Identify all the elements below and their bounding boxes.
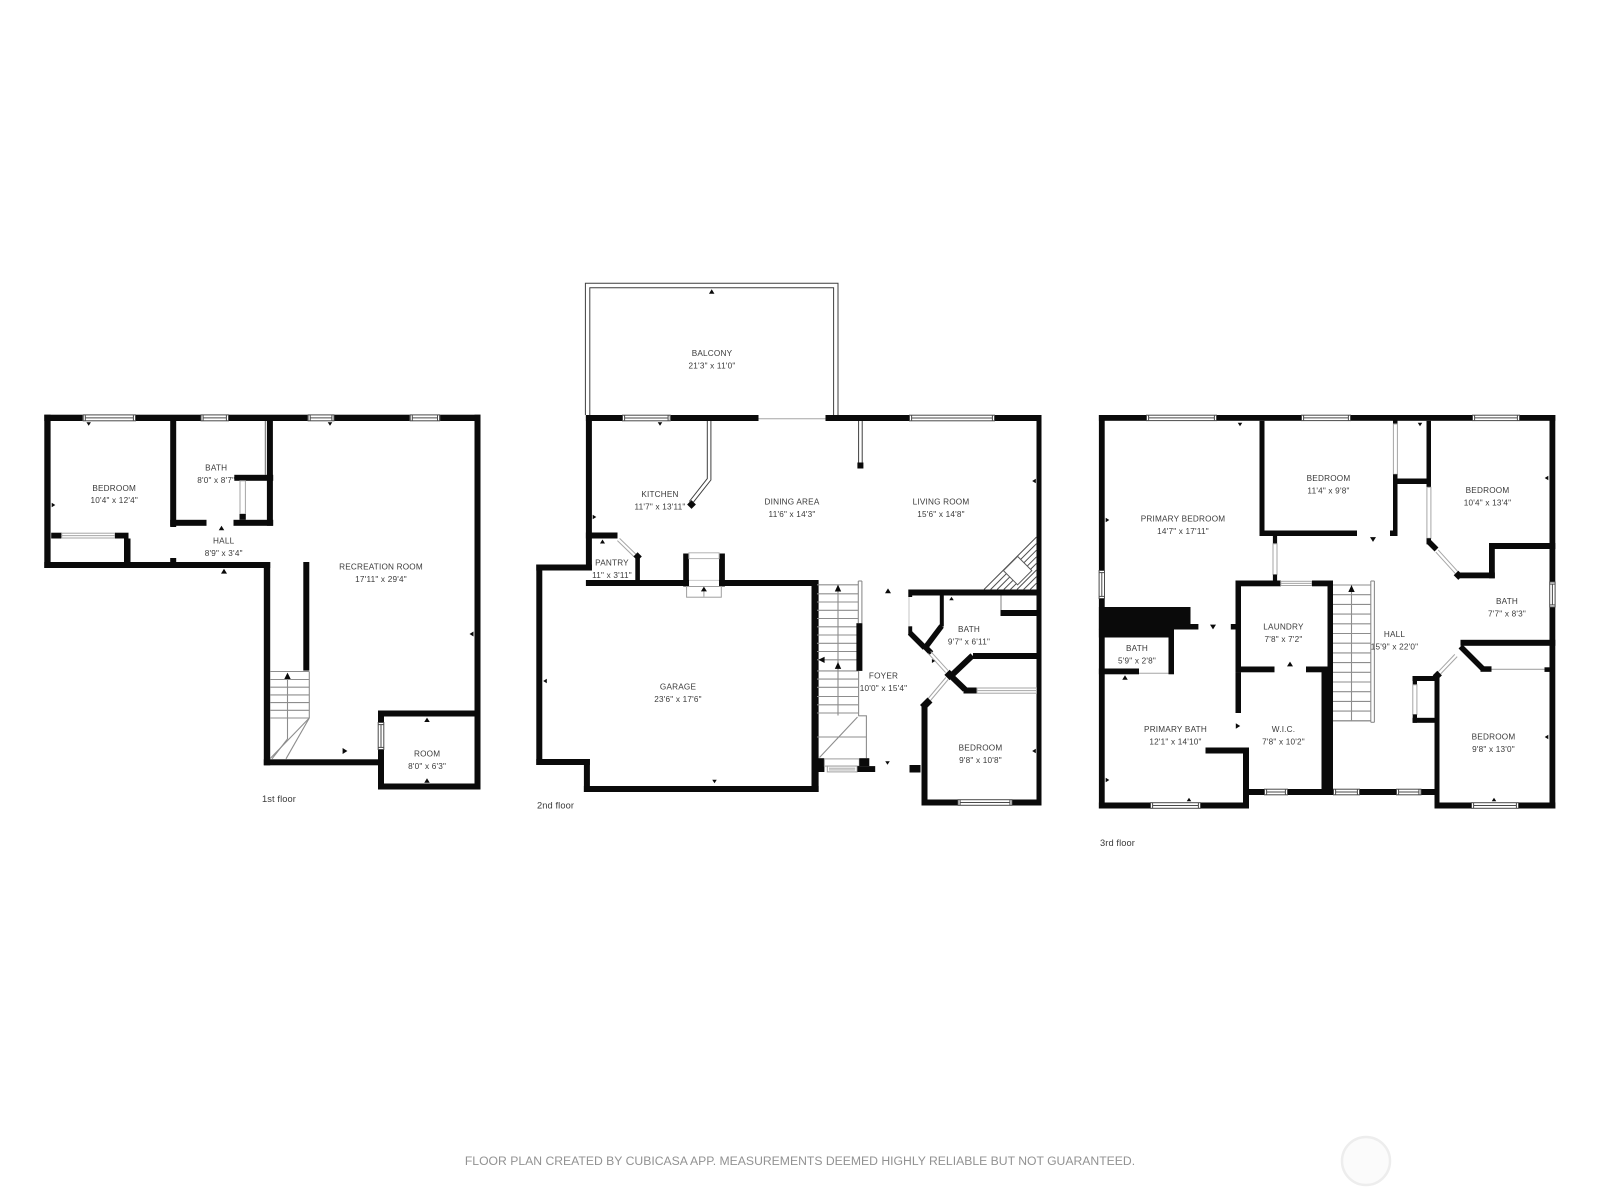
svg-text:11" x 3'11": 11" x 3'11" [592, 571, 632, 580]
svg-text:15'9" x 22'0": 15'9" x 22'0" [1371, 643, 1419, 652]
svg-text:BATH: BATH [958, 625, 980, 634]
svg-text:BEDROOM: BEDROOM [1466, 486, 1510, 495]
svg-text:BEDROOM: BEDROOM [959, 744, 1003, 753]
svg-text:RECREATION ROOM: RECREATION ROOM [339, 563, 423, 572]
svg-text:23'6" x 17'6": 23'6" x 17'6" [654, 695, 702, 704]
svg-text:BEDROOM: BEDROOM [1472, 733, 1516, 742]
svg-text:2nd floor: 2nd floor [537, 801, 574, 811]
svg-text:8'9" x 3'4": 8'9" x 3'4" [205, 549, 243, 558]
svg-text:11'6" x 14'3": 11'6" x 14'3" [769, 510, 816, 519]
svg-text:KITCHEN: KITCHEN [641, 490, 678, 499]
svg-text:1st floor: 1st floor [262, 794, 296, 804]
svg-text:9'8" x 10'8": 9'8" x 10'8" [959, 756, 1002, 765]
svg-text:15'6" x 14'8": 15'6" x 14'8" [917, 510, 965, 519]
svg-text:FOYER: FOYER [869, 672, 898, 681]
svg-text:BEDROOM: BEDROOM [1307, 474, 1351, 483]
svg-text:LAUNDRY: LAUNDRY [1263, 623, 1304, 632]
svg-text:DINING AREA: DINING AREA [765, 498, 820, 507]
svg-text:12'1" x 14'10": 12'1" x 14'10" [1149, 738, 1201, 747]
svg-text:ROOM: ROOM [414, 750, 440, 759]
svg-text:5'9" x 2'8": 5'9" x 2'8" [1118, 657, 1156, 666]
svg-text:17'11" x 29'4": 17'11" x 29'4" [355, 575, 407, 584]
svg-text:HALL: HALL [213, 536, 235, 545]
svg-text:8'0" x 6'3": 8'0" x 6'3" [408, 762, 446, 771]
svg-text:11'4" x 9'8": 11'4" x 9'8" [1307, 487, 1349, 496]
svg-text:BATH: BATH [205, 464, 227, 473]
svg-text:7'8" x 7'2": 7'8" x 7'2" [1265, 635, 1303, 644]
svg-text:10'4" x 12'4": 10'4" x 12'4" [90, 496, 138, 505]
svg-text:W.I.C.: W.I.C. [1272, 725, 1296, 734]
svg-text:BEDROOM: BEDROOM [92, 484, 136, 493]
svg-text:7'8" x 10'2": 7'8" x 10'2" [1262, 738, 1305, 747]
svg-text:8'0" x 8'7": 8'0" x 8'7" [197, 476, 235, 485]
svg-text:BATH: BATH [1496, 597, 1518, 606]
svg-text:FLOOR PLAN CREATED BY CUBICASA: FLOOR PLAN CREATED BY CUBICASA APP. MEAS… [465, 1154, 1135, 1168]
svg-text:11'7" x 13'11": 11'7" x 13'11" [634, 503, 685, 512]
svg-text:BATH: BATH [1126, 644, 1148, 653]
svg-text:BALCONY: BALCONY [692, 349, 733, 358]
svg-text:14'7" x 17'11": 14'7" x 17'11" [1157, 527, 1209, 536]
svg-text:3rd floor: 3rd floor [1100, 838, 1135, 848]
svg-text:PRIMARY BEDROOM: PRIMARY BEDROOM [1141, 515, 1226, 524]
svg-text:HALL: HALL [1384, 630, 1406, 639]
svg-text:PANTRY: PANTRY [595, 559, 629, 568]
svg-text:PRIMARY BATH: PRIMARY BATH [1144, 725, 1207, 734]
svg-text:21'3" x 11'0": 21'3" x 11'0" [689, 362, 736, 371]
svg-text:9'7" x 6'11": 9'7" x 6'11" [948, 638, 990, 647]
svg-text:10'0" x 15'4": 10'0" x 15'4" [860, 684, 908, 693]
svg-text:9'8" x 13'0": 9'8" x 13'0" [1472, 745, 1515, 754]
svg-text:7'7" x 8'3": 7'7" x 8'3" [1488, 610, 1526, 619]
svg-text:LIVING ROOM: LIVING ROOM [913, 498, 970, 507]
svg-text:GARAGE: GARAGE [660, 683, 697, 692]
svg-text:10'4" x 13'4": 10'4" x 13'4" [1464, 499, 1512, 508]
